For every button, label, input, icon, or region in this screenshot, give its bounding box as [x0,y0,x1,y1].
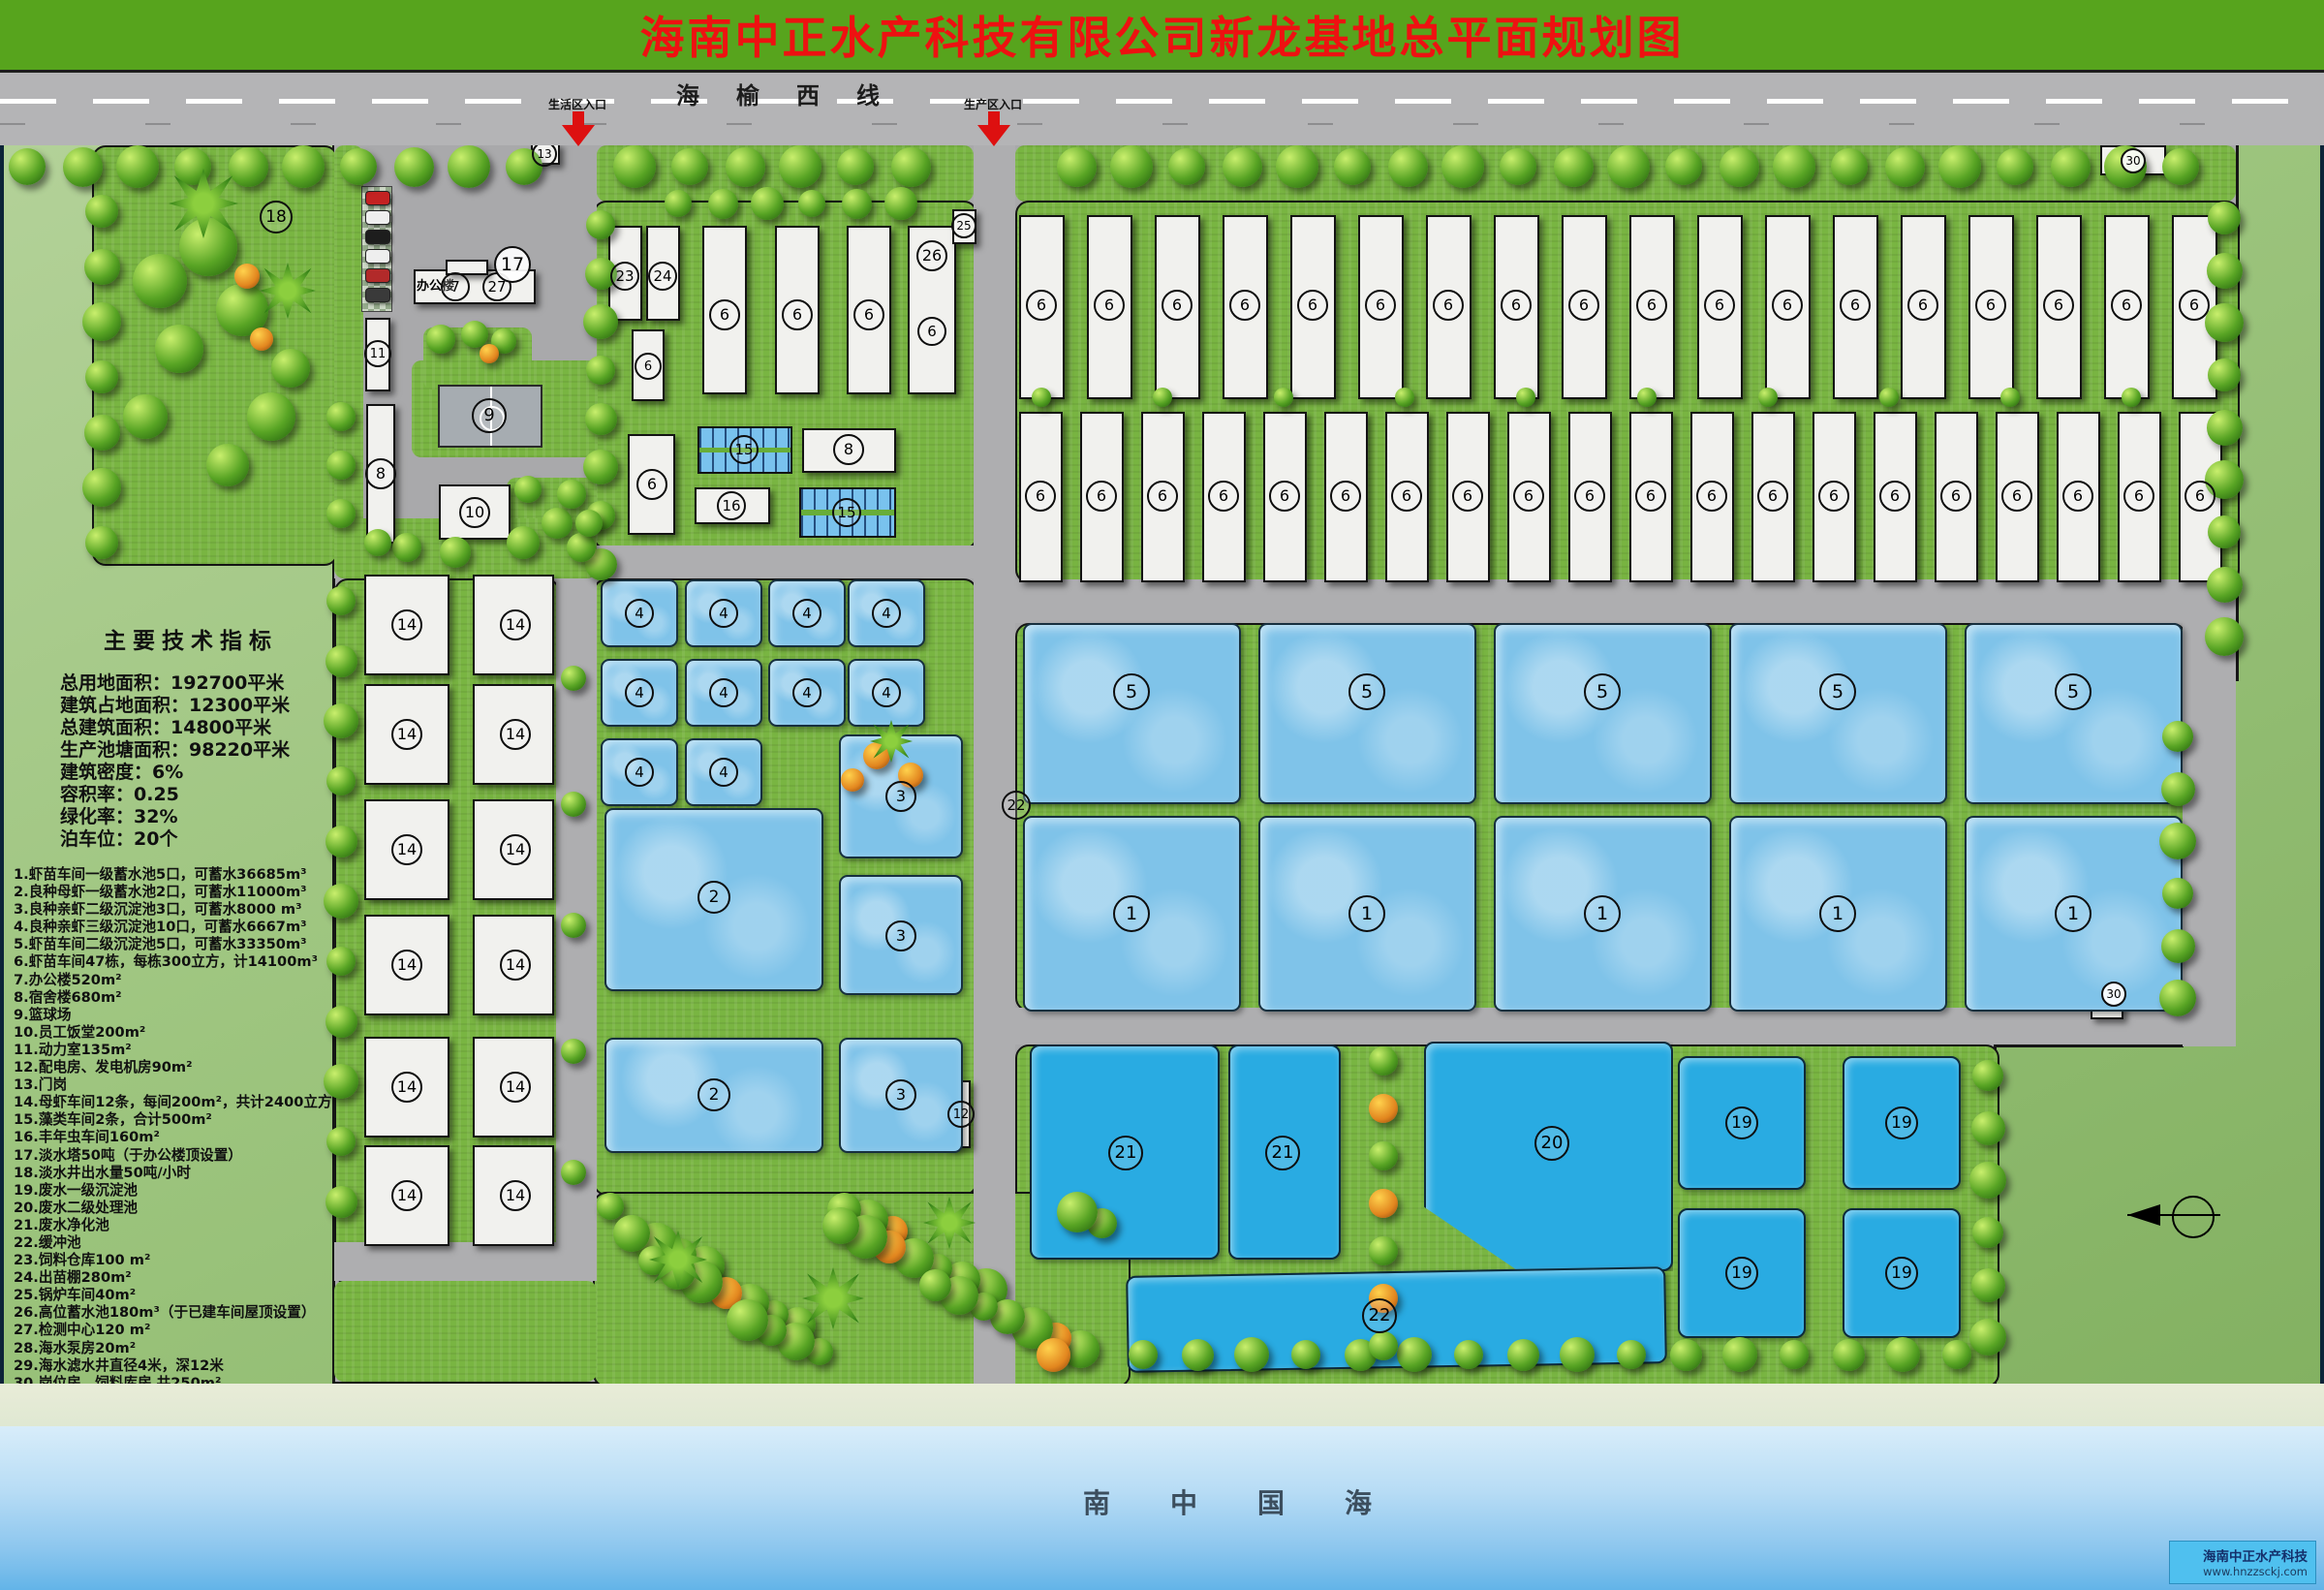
tree-icon [891,147,931,187]
legend-item-14: 14.母虾车间12条，每间200m²，共计2400立方 [14,1094,343,1111]
marker-workshop: 6 [1147,481,1178,512]
tree-icon [779,145,821,188]
marker-pond5: 5 [1819,673,1856,710]
marker-pond4: 4 [872,599,901,628]
marker-mother-shrimp: 14 [391,950,422,981]
tree-icon [1454,1340,1483,1369]
tree-icon [1234,1337,1269,1372]
parked-car [365,191,390,205]
tree-icon [1182,1339,1214,1371]
tree-icon [1758,388,1778,407]
tree-icon [2207,567,2243,603]
marker-pond4: 4 [709,758,738,787]
parked-car [365,210,390,225]
marker-workshop: 6 [2062,481,2093,512]
marker-buffer-small: 22 [1002,791,1031,820]
marker-workshop: 6 [1635,481,1666,512]
marker-workshop: 6 [1086,481,1117,512]
tree-icon [597,1193,624,1220]
site-boundary-step2 [1994,1044,2184,1047]
marker-purify: 21 [1108,1136,1143,1170]
marker-workshop: 6 [636,469,667,500]
marker-dorm-east: 8 [833,434,864,465]
marker-workshop: 6 [1818,481,1849,512]
legend-item-22: 22.缓冲池 [14,1234,343,1252]
tree-icon [1938,145,1981,188]
tree-icon [1833,1339,1865,1371]
road-centerline [0,99,2324,104]
tree-icon [426,325,455,354]
tree-icon [2208,515,2241,548]
secondary-settling-pond [1258,623,1476,804]
secondary-settling-pond [1729,623,1947,804]
tree-icon [282,145,325,188]
marker-pond3: 3 [885,920,916,951]
secondary-settling-pond [1494,623,1712,804]
tree-icon [116,145,159,188]
marker-workshop: 6 [1696,481,1727,512]
beach-strip [0,1384,2324,1426]
marker-mother-shrimp: 14 [391,719,422,750]
marker-workshop: 6 [2111,290,2142,321]
tree-icon [561,666,586,691]
southwest-lawn [334,1281,597,1382]
orange-tree-icon [841,768,864,792]
road-east-horizontal [1015,579,2183,623]
marker-pond1: 1 [1819,895,1856,932]
tree-icon [1369,1331,1398,1360]
tree-icon [85,526,118,559]
tree-icon [585,403,617,435]
tree-icon [1110,145,1153,188]
compass-circle-icon [2172,1196,2215,1238]
marker-workshop: 6 [1501,290,1532,321]
marker-workshop: 6 [1975,290,2006,321]
marker-pond2: 2 [697,1078,730,1111]
orange-tree-icon [234,264,260,289]
marker-post-north: 30 [2121,148,2146,173]
tree-icon [1388,147,1428,187]
map-canvas: 办公楼1813727171189102324666266256615816156… [0,0,2324,1590]
tree-icon [586,356,615,385]
marker-workshop: 6 [1162,290,1193,321]
marker-mother-shrimp: 14 [391,1072,422,1103]
parked-car [365,268,390,283]
tree-icon [557,480,586,509]
tree-icon [1223,147,1262,187]
tree-icon [1291,1340,1320,1369]
marker-pond4: 4 [625,678,654,707]
legend-item-8: 8.宿舍楼680m² [14,989,343,1007]
marker-workshop: 6 [782,299,813,330]
secondary-settling-pond [1023,623,1241,804]
tree-icon [1879,388,1899,407]
legend-item-25: 25.锅炉车间40m² [14,1287,343,1304]
marker-workshop: 6 [1772,290,1803,321]
marker-workshop: 6 [2043,290,2074,321]
company-website: www.hnzzsckj.com [2174,1565,2308,1578]
marker-workshop: 6 [1391,481,1422,512]
marker-pond4: 4 [625,758,654,787]
marker-workshop: 6 [1433,290,1464,321]
marker-pond3: 3 [885,1079,916,1110]
marker-workshop: 6 [2001,481,2032,512]
tree-icon [448,145,490,188]
tree-icon [326,766,356,795]
marker-pond1: 1 [1113,895,1150,932]
marker-wastewater1: 19 [1885,1257,1918,1290]
tree-icon [229,147,268,187]
sea-label: 南中国海 [1083,1482,1432,1521]
tree-icon [1369,1189,1398,1218]
marker-pond5: 5 [2055,673,2092,710]
tree-icon [1831,148,1868,185]
tree-icon [1369,1236,1398,1265]
legend-item-28: 28.海水泵房20m² [14,1340,343,1357]
marker-seedling-shed: 24 [648,262,677,291]
legend-item-27: 27.检测中心120 m² [14,1322,343,1339]
marker-pond4: 4 [625,599,654,628]
legend-item-2: 2.良种母虾一级蓄水池2口，可蓄水11000m³ [14,884,343,901]
tree-icon [326,499,356,528]
tree-icon [837,148,874,185]
legend-list: 1.虾苗车间一级蓄水池5口，可蓄水36685m³2.良种母虾一级蓄水池2口，可蓄… [14,866,343,1392]
legend-item-21: 21.废水净化池 [14,1217,343,1234]
tech-line-4: 生产池塘面积：98220平米 [60,739,322,762]
tech-line-8: 泊车位：20个 [60,828,322,851]
legend-item-10: 10.员工饭堂200m² [14,1024,343,1042]
tech-line-5: 建筑密度：6% [60,762,322,784]
company-name: 海南中正水产科技 [2174,1545,2308,1565]
tree-icon [751,187,784,220]
tree-icon [271,349,310,388]
tree-icon [1885,1337,1920,1372]
tree-icon [461,321,488,348]
tree-icon [326,451,356,480]
marker-mother-shrimp: 14 [500,1072,531,1103]
marker-pond5: 5 [1584,673,1621,710]
marker-workshop: 6 [1094,290,1125,321]
tree-icon [1942,1340,1971,1369]
marker-pond5: 5 [1348,673,1385,710]
legend-item-16: 16.丰年虫车间160m² [14,1129,343,1146]
tree-icon [2207,410,2243,446]
tree-icon [2051,147,2091,187]
palm-tree-icon [923,1197,976,1249]
tree-icon [1969,1319,2006,1356]
tree-icon [1997,148,2033,185]
marker-workshop: 6 [917,317,946,346]
tree-icon [561,792,586,817]
tree-icon [1560,1337,1595,1372]
tree-icon [1276,145,1318,188]
tech-line-7: 绿化率：32% [60,806,322,828]
marker-canteen: 10 [459,497,490,528]
tree-icon [1037,1338,1070,1372]
tree-icon [2205,303,2244,342]
marker-dorm-west: 8 [365,458,396,489]
marker-water-tower: 17 [494,246,531,283]
marker-workshop: 6 [1026,290,1057,321]
palm-tree-icon [802,1267,864,1329]
tree-icon [1607,145,1650,188]
parked-car [365,230,390,244]
marker-workshop: 6 [1269,481,1300,512]
parked-car [365,249,390,264]
living-entrance-arrowhead [562,125,595,146]
tree-icon [1971,1268,2005,1302]
marker-workshop: 6 [1574,481,1605,512]
tree-icon [822,1207,859,1244]
marker-mother-shrimp: 14 [500,609,531,640]
living-west-strip [334,145,363,546]
technical-indicators: 主要技术指标 总用地面积：192700平米建筑占地面积：12300平米总建筑面积… [60,622,322,851]
marker-workshop: 6 [1025,481,1056,512]
tree-icon [84,415,120,451]
legend-item-13: 13.门岗 [14,1076,343,1094]
marker-basketball: 9 [472,398,507,433]
palm-tree-icon [870,720,913,763]
tree-icon [82,302,121,341]
legend-item-18: 18.淡水井出水量50吨/小时 [14,1165,343,1182]
tree-icon [85,195,118,228]
tree-icon [155,325,203,373]
marker-workshop: 6 [1636,290,1667,321]
marker-workshop: 6 [709,299,740,330]
orange-tree-icon [250,327,273,351]
tree-icon [561,1160,586,1185]
marker-workshop: 6 [1840,290,1871,321]
living-entrance-arrow [573,111,584,126]
marker-wastewater1: 19 [1725,1257,1758,1290]
tree-icon [2122,388,2141,407]
tree-icon [1773,145,1815,188]
marker-workshop: 6 [1568,290,1599,321]
parked-car [365,288,390,302]
marker-pond1: 1 [1584,895,1621,932]
tree-icon [1032,388,1051,407]
tree-icon [1972,1060,2003,1091]
marker-pond4: 4 [792,599,821,628]
tech-line-6: 容积率：0.25 [60,784,322,806]
tree-icon [726,147,765,187]
marker-pond4: 4 [709,599,738,628]
legend-item-24: 24.出苗棚280m² [14,1269,343,1287]
tree-icon [133,254,187,308]
tree-icon [1274,388,1293,407]
marker-mother-shrimp: 14 [500,834,531,865]
marker-workshop: 6 [1513,481,1544,512]
marker-workshop: 6 [1452,481,1483,512]
tree-icon [2159,980,2196,1016]
marker-mother-shrimp: 14 [500,950,531,981]
tree-icon [798,190,825,217]
tree-icon [1129,1340,1158,1369]
legend-item-4: 4.良种亲虾三级沉淀池10口，可蓄水6667m³ [14,919,343,936]
tech-line-2: 建筑占地面积：12300平米 [60,695,322,717]
tree-icon [919,1269,951,1301]
marker-workshop: 6 [1330,481,1361,512]
tree-icon [2205,617,2244,656]
legend-item-15: 15.藻类车间2条，合计500m² [14,1111,343,1129]
parking-lot [361,186,392,312]
legend-item-6: 6.虾苗车间47栋，每栋300立方，计14100m³ [14,953,343,971]
marker-workshop: 6 [853,299,884,330]
marker-algae: 15 [729,435,759,464]
tree-icon [2000,388,2020,407]
production-axis-road [974,145,1015,1384]
tree-icon [1720,147,1759,187]
road-name: 海榆西线 [676,77,916,110]
marker-wastewater1: 19 [1725,1107,1758,1139]
marker-pond4: 4 [709,678,738,707]
title-band: 海南中正水产科技有限公司新龙基地总平面规划图 [0,0,2324,73]
tree-icon [63,147,103,187]
tree-icon [514,476,542,503]
legend-item-11: 11.动力室135m² [14,1042,343,1059]
tree-icon [1637,388,1657,407]
tree-icon [1780,1340,1809,1369]
tree-icon [1971,1111,2005,1145]
compass-needle-icon [2127,1204,2160,1226]
marker-pond5: 5 [1113,673,1150,710]
tree-icon [1516,388,1535,407]
marker-mother-shrimp: 14 [391,834,422,865]
tree-icon [394,147,434,187]
tree-icon [325,645,357,677]
tree-icon [340,148,377,185]
tree-icon [586,210,615,239]
site-plan: 办公楼1813727171189102324666266256615816156… [0,0,2324,1590]
legend-item-26: 26.高位蓄水池180m³（于已建车间屋顶设置） [14,1304,343,1322]
tree-icon [1617,1340,1646,1369]
tree-icon [1334,148,1371,185]
sea-area: 南中国海 海南中正水产科技 www.hnzzsckj.com [0,1426,2324,1590]
marker-workshop: 6 [1208,481,1239,512]
marker-workshop: 6 [1365,290,1396,321]
orange-tree-icon [480,344,499,363]
marker-workshop: 6 [1704,290,1735,321]
marker-workshop: 6 [1879,481,1910,512]
tree-icon [123,394,168,439]
tree-icon [583,304,618,339]
tree-icon [84,249,120,285]
legend-item-20: 20.废水二级处理池 [14,1200,343,1217]
tree-icon [884,187,917,220]
technical-indicators-list: 总用地面积：192700平米建筑占地面积：12300平米总建筑面积：14800平… [60,672,322,851]
tree-icon [613,145,656,188]
legend-item-1: 1.虾苗车间一级蓄水池5口，可蓄水36685m³ [14,866,343,884]
tree-icon [1168,148,1205,185]
marker-feed-warehouse: 23 [610,262,639,291]
marker-generator: 12 [947,1101,975,1128]
palm-tree-icon [649,1231,707,1289]
legend-item-12: 12.配电房、发电机房90m² [14,1059,343,1076]
marker-brine-shrimp: 16 [717,491,746,520]
road-west-horizontal [593,546,974,578]
tree-icon [1507,1339,1539,1371]
tree-icon [325,826,357,857]
tree-icon [9,148,46,185]
marker-workshop: 6 [635,353,662,380]
marker-boiler: 25 [951,213,976,238]
legend-item-23: 23.饲料仓库100 m² [14,1252,343,1269]
tree-icon [1369,1094,1398,1123]
marker-post-east: 30 [2101,982,2126,1007]
tree-icon [542,508,573,539]
marker-workshop: 6 [1907,290,1938,321]
tree-icon [364,529,391,556]
tree-icon [392,533,421,562]
tree-icon [1395,388,1414,407]
tree-icon [2162,878,2193,909]
road-southwest [334,1242,597,1281]
marker-freshwater-well: 18 [260,201,293,234]
legend-item-5: 5.虾苗车间二级沉淀池5口，可蓄水33350m³ [14,936,343,953]
tree-icon [2161,929,2195,963]
tree-icon [247,392,295,441]
legend-item-29: 29.海水滤水井直径4米，深12米 [14,1357,343,1375]
tree-icon [2162,148,2199,185]
road-ticks [0,123,2324,125]
marker-treatment2: 20 [1534,1126,1569,1161]
production-entrance-arrow [988,111,1000,126]
legend-item-17: 17.淡水塔50吨（于办公楼顶设置） [14,1147,343,1165]
production-entrance-arrowhead [977,125,1010,146]
tree-icon [82,468,121,507]
tree-icon [324,703,358,738]
page-title: 海南中正水产科技有限公司新龙基地总平面规划图 [640,3,1685,67]
marker-algae: 15 [832,498,861,527]
tree-icon [671,148,708,185]
marker-office: 7 [441,272,470,301]
marker-mother-shrimp: 14 [391,609,422,640]
legend-item-19: 19.废水一级沉淀池 [14,1182,343,1200]
tree-icon [1153,388,1172,407]
tree-icon [1057,1192,1098,1232]
marker-purify: 21 [1265,1136,1300,1170]
tree-icon [665,190,692,217]
tree-icon [575,510,603,537]
tree-icon [1500,148,1536,185]
marker-mother-shrimp: 14 [500,719,531,750]
marker-pond1: 1 [2055,895,2092,932]
tree-icon [1722,1337,1757,1372]
tree-icon [1969,1162,2006,1199]
marker-workshop: 6 [1229,290,1260,321]
tree-icon [2208,359,2241,391]
marker-buffer: 22 [1362,1298,1397,1333]
tree-icon [1441,145,1484,188]
secondary-settling-pond [1965,623,2183,804]
tree-icon [1665,148,1702,185]
tree-icon [1369,1141,1398,1170]
legend-item-7: 7.办公楼520m² [14,972,343,989]
marker-mother-shrimp: 14 [500,1180,531,1211]
tree-icon [1554,147,1594,187]
legend-item-9: 9.篮球场 [14,1007,343,1024]
tree-icon [2208,202,2241,234]
tree-icon [842,189,872,219]
palm-tree-icon [260,263,316,319]
marker-pond1: 1 [1348,895,1385,932]
tree-icon [2161,772,2195,806]
marker-workshop: 6 [1297,290,1328,321]
living-entrance-label: 生活区入口 [548,96,606,112]
tree-icon [561,1039,586,1064]
marker-wastewater1: 19 [1885,1107,1918,1139]
tree-icon [85,360,118,393]
